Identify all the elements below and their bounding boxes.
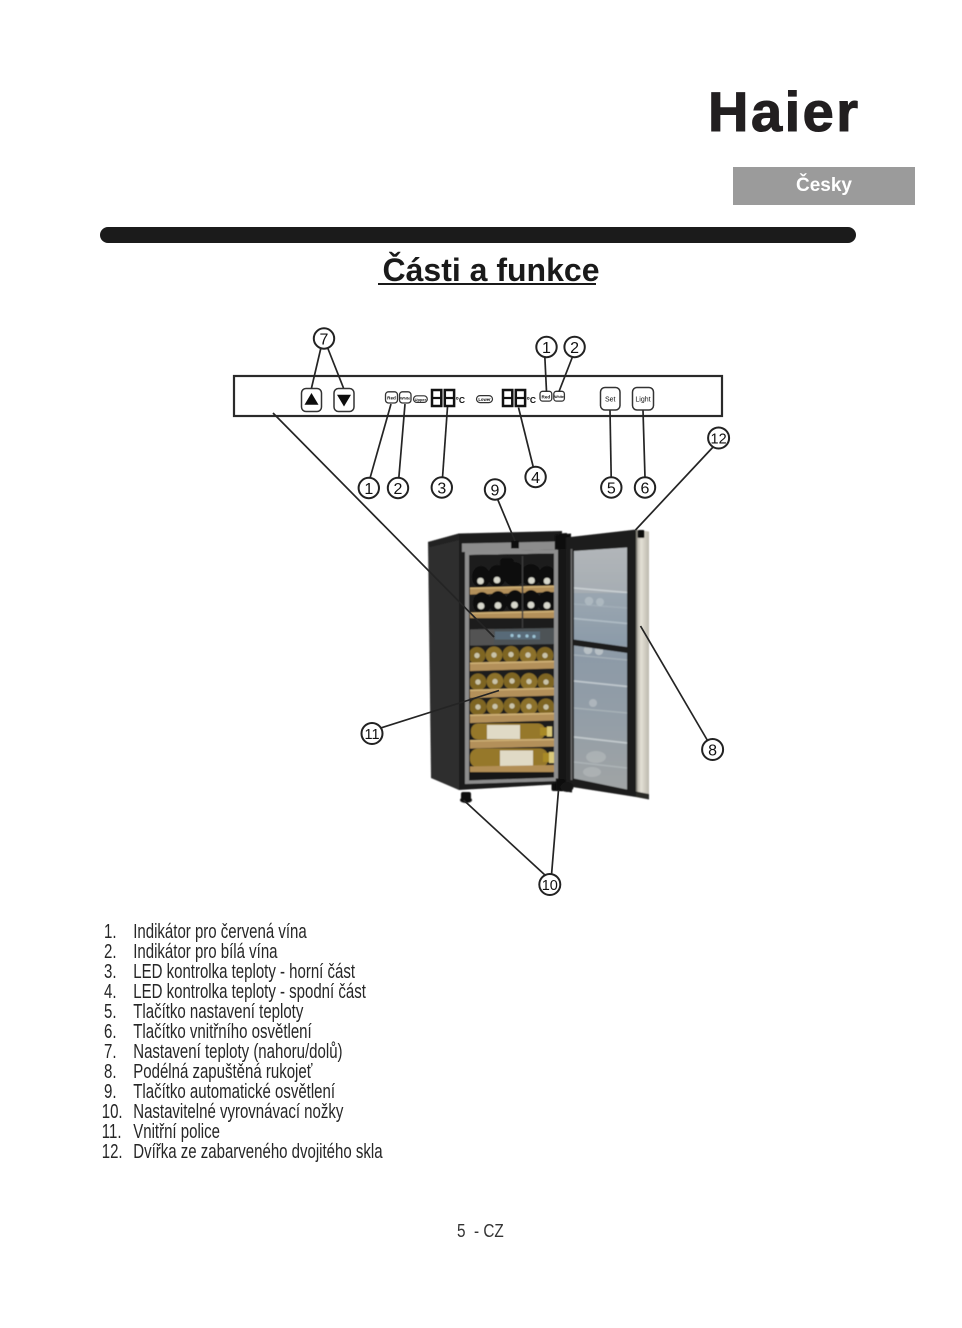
svg-text:10: 10 (542, 878, 558, 894)
svg-text:Red: Red (542, 394, 551, 399)
svg-text:8: 8 (708, 742, 717, 759)
svg-text:7: 7 (320, 331, 329, 348)
svg-text:Set: Set (605, 397, 616, 404)
svg-text:3: 3 (437, 480, 446, 497)
svg-text:4: 4 (531, 470, 540, 487)
svg-text:White: White (400, 397, 410, 401)
svg-text:2: 2 (570, 340, 579, 357)
svg-text:°C: °C (456, 395, 466, 405)
svg-text:2: 2 (394, 481, 403, 498)
svg-text:1: 1 (542, 340, 551, 357)
svg-text:11: 11 (364, 727, 379, 743)
svg-text:9: 9 (491, 482, 500, 499)
svg-text:Red: Red (387, 396, 396, 401)
svg-text:White: White (554, 395, 564, 399)
svg-text:Light: Light (635, 397, 650, 404)
svg-text:5: 5 (607, 480, 616, 497)
svg-text:6: 6 (641, 480, 650, 497)
svg-text:Lower: Lower (478, 397, 491, 402)
svg-text:°C: °C (527, 395, 537, 405)
svg-text:1: 1 (364, 481, 373, 498)
svg-text:12: 12 (711, 431, 727, 447)
svg-text:Upper: Upper (415, 397, 427, 402)
